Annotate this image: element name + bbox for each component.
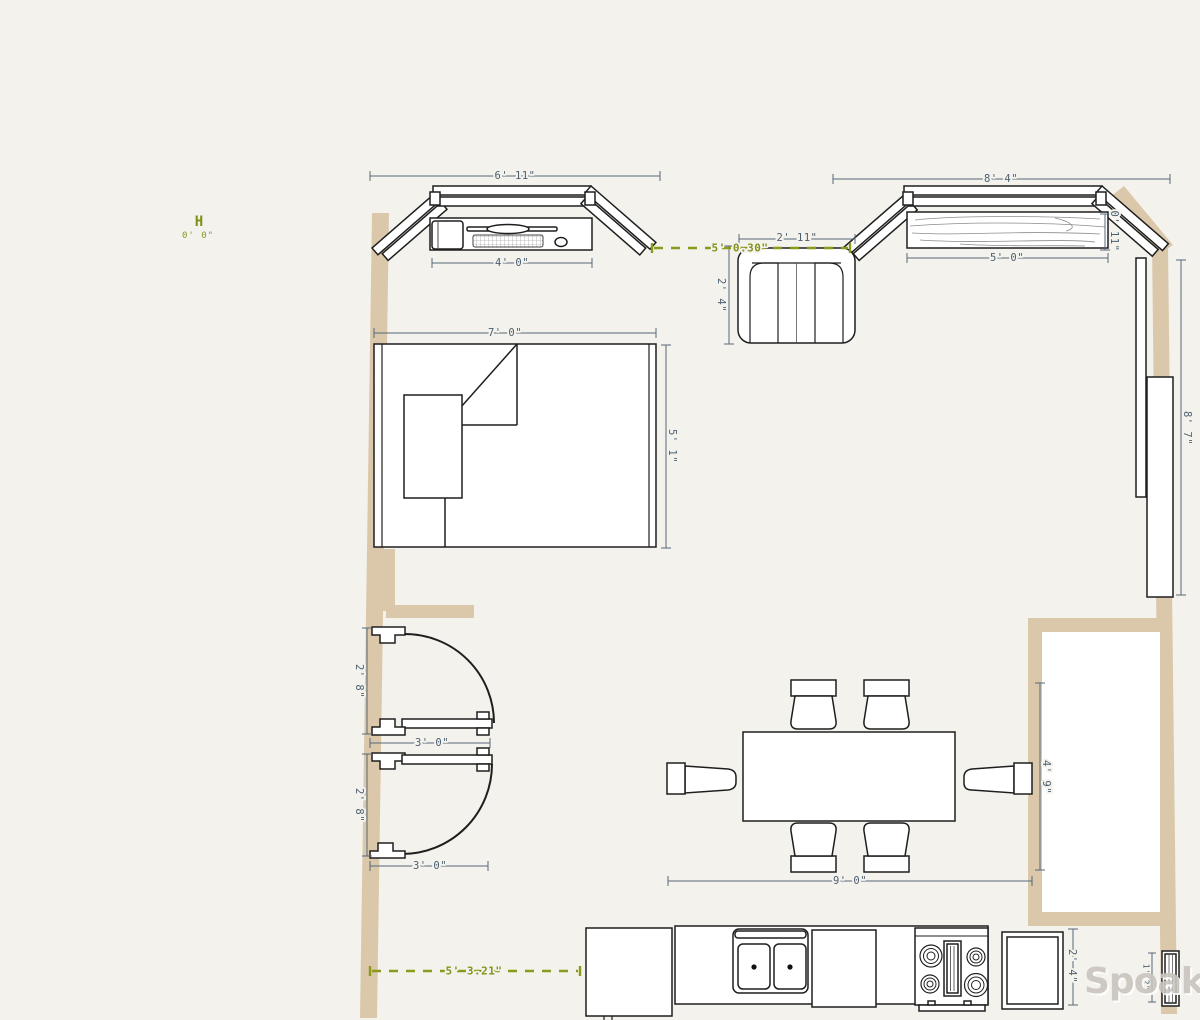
stove-grill: [944, 941, 961, 996]
wall-shelf-thin: [1136, 258, 1146, 497]
dim-door-upper-opening: 3' 0": [415, 737, 449, 749]
dim-dining-depth: 4' 9": [1040, 760, 1052, 794]
door-latch: [477, 712, 489, 719]
spoak-watermark: Spoak. Spoak.: [1084, 961, 1200, 1004]
dining-chair-right[interactable]: [964, 763, 1032, 794]
measure-guide-bottom[interactable]: 5' 3.21": [370, 965, 580, 978]
kitchen-fridge[interactable]: [586, 928, 672, 1016]
door-latch: [477, 748, 489, 755]
dim-armchair-depth: 2' 4": [715, 278, 727, 312]
kitchen-sink[interactable]: [733, 929, 808, 993]
bay-joint-notch: [585, 192, 595, 205]
dim-desk: 4' 0": [495, 257, 529, 269]
floor-plan-page: 6' 11" 4' 0" 8' 4" 5' 0" 0' 11" 2' 11" 2…: [0, 0, 1200, 1020]
door-swing-arc: [405, 634, 494, 723]
dim-console-width: 5' 0": [990, 252, 1024, 264]
bay-joint-notch: [1096, 192, 1106, 205]
stove-handle: [919, 1005, 985, 1011]
dim-office-bay: 6' 11": [495, 170, 536, 182]
bay-joint-notch: [903, 192, 913, 205]
door-leaf: [402, 755, 492, 764]
desk-book[interactable]: [432, 221, 463, 249]
sink-drain: [787, 964, 792, 969]
desk-monitor-base: [487, 225, 529, 234]
sink-drain: [751, 964, 756, 969]
area-rug[interactable]: [374, 344, 656, 547]
measure-guide-bottom-label: 5' 3.21": [446, 965, 503, 978]
origin-marker-label: H: [195, 214, 203, 230]
dining-set[interactable]: [667, 680, 1032, 872]
door-leaf: [402, 719, 492, 728]
dining-table[interactable]: [743, 732, 955, 821]
door-latch: [477, 764, 489, 771]
dim-armchair-width: 2' 11": [777, 232, 818, 244]
bay-joint-notch: [430, 192, 440, 205]
dining-chair-left[interactable]: [667, 763, 736, 794]
measure-guide-top-label: 5' 0.30": [712, 242, 769, 255]
armchair[interactable]: [738, 248, 855, 343]
wall-shelf-wide: [1147, 377, 1173, 597]
dim-door-upper-leaf: 2' 8": [353, 664, 365, 698]
door-latch: [477, 728, 489, 735]
dining-chair-bottom-1[interactable]: [791, 823, 836, 872]
spoak-watermark-text: Spoak.: [1084, 961, 1200, 1002]
dim-wall-unit: 8' 7": [1181, 411, 1193, 445]
office-desk[interactable]: [430, 218, 592, 250]
dim-rug-width: 7' 0": [488, 327, 522, 339]
dim-kitchen-depth: 2' 4": [1066, 949, 1078, 983]
dining-chair-top-1[interactable]: [791, 680, 836, 729]
door-lower[interactable]: [370, 748, 492, 858]
dim-dining-width: 9' 0": [833, 875, 867, 887]
sink-faucet-bar: [735, 931, 806, 938]
kitchen-stove[interactable]: [915, 928, 988, 1011]
dim-door-lower-leaf: 2' 8": [353, 788, 365, 822]
floor-plan-canvas: 6' 11" 4' 0" 8' 4" 5' 0" 0' 11" 2' 11" 2…: [0, 0, 1200, 1020]
pantry-wall-top: [1028, 618, 1160, 632]
wood-console[interactable]: [907, 212, 1108, 248]
origin-marker-coordinates: 0' 0": [182, 231, 214, 241]
desk-keyboard[interactable]: [473, 235, 543, 247]
pantry-interior: [1042, 632, 1160, 912]
wall-stub-vertical: [382, 549, 395, 611]
dim-door-lower-opening: 3' 0": [413, 860, 447, 872]
door-swing-arc: [402, 764, 492, 854]
dim-rug-length: 5' 1": [666, 429, 678, 463]
dim-media-bay: 8' 4": [984, 173, 1018, 185]
dining-chair-bottom-2[interactable]: [864, 823, 909, 872]
dining-chair-top-2[interactable]: [864, 680, 909, 729]
kitchen-cabinet[interactable]: [1002, 932, 1063, 1009]
dim-console-depth: 0' 11": [1108, 211, 1120, 252]
desk-mouse[interactable]: [555, 238, 567, 247]
door-upper[interactable]: [372, 627, 494, 735]
kitchen-dishwasher[interactable]: [812, 930, 876, 1007]
wall-stub-horizontal: [386, 605, 474, 618]
origin-marker[interactable]: H 0' 0": [182, 214, 214, 241]
pantry-wall-bottom: [1028, 912, 1160, 926]
